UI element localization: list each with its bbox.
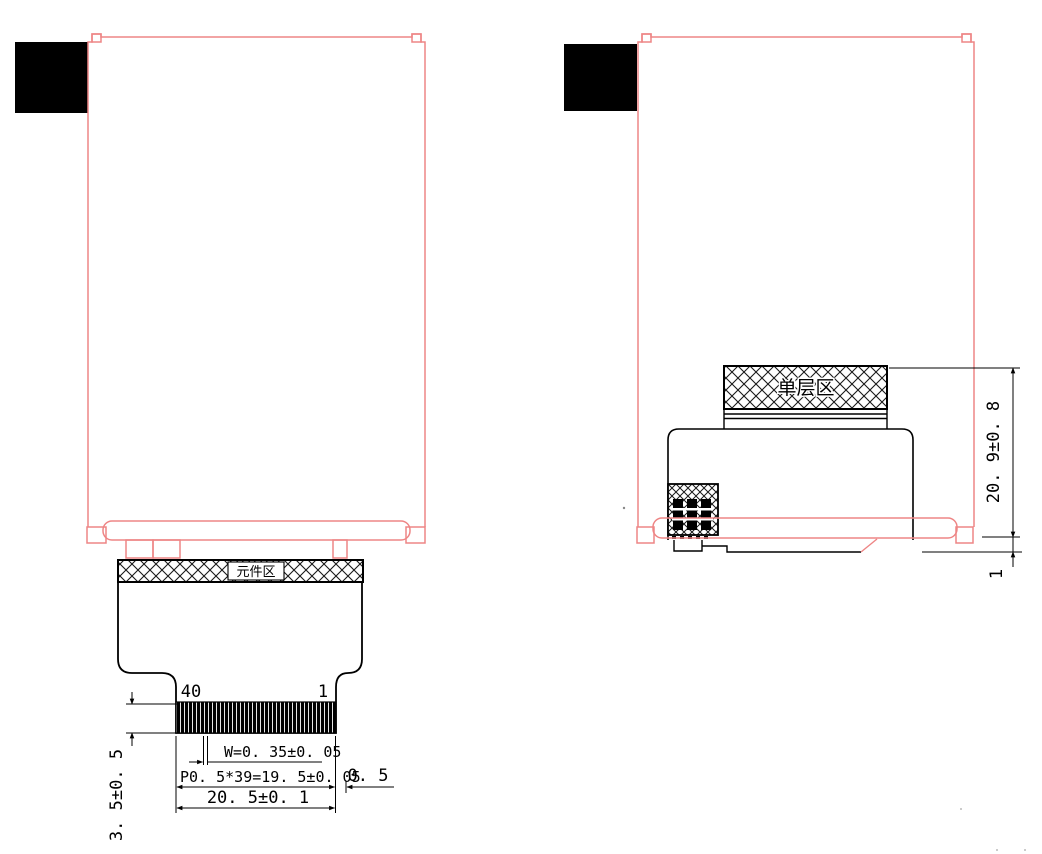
dim-total-width: 20. 5±0. 1 <box>207 788 309 808</box>
corner-mark-right <box>412 34 421 42</box>
fold-lines <box>674 540 861 552</box>
stray-point-marks <box>623 507 1042 851</box>
front-view: 元件区 40 1 3. 5±0. 5 <box>15 34 425 841</box>
dim-edge-margin: 0. 5 <box>348 766 389 786</box>
side-bottom-tab-left <box>637 527 654 543</box>
pin-40-label: 40 <box>181 682 201 702</box>
dim-total-height: 20. 9±0. 8 <box>984 401 1004 503</box>
front-panel-outline <box>87 34 425 558</box>
dim-tail-height: 3. 5±0. 5 <box>107 749 127 841</box>
side-bottom-tab-right <box>956 527 973 543</box>
technical-drawing: 元件区 40 1 3. 5±0. 5 <box>0 0 1042 854</box>
side-fpc-neck <box>724 409 887 429</box>
fpc-joint-tab-3 <box>333 540 347 558</box>
fpc-joint-tab-2 <box>153 540 180 558</box>
corner-mark-right <box>962 34 971 42</box>
fpc-joint-tab-1 <box>126 540 153 558</box>
corner-mark-left <box>92 34 101 42</box>
panel-outline-path <box>88 34 425 527</box>
fold-diagonal <box>861 539 877 552</box>
pin-1-label: 1 <box>318 682 328 702</box>
panel-bottom-bar <box>103 521 410 540</box>
side-view: 单层区 <box>564 34 1022 579</box>
dim-fold-offset: 1 <box>987 569 1007 579</box>
single-layer-label: 单层区 <box>777 377 834 399</box>
drawing-canvas: 元件区 40 1 3. 5±0. 5 <box>0 0 1042 854</box>
pin-contact-band <box>176 702 336 733</box>
dim-pin-width: W=0. 35±0. 05 <box>224 743 341 761</box>
side-black-tab <box>564 44 637 111</box>
dim-pitch-span: P0. 5*39=19. 5±0. 05 <box>180 768 361 786</box>
component-area-label: 元件区 <box>236 565 275 580</box>
front-black-tab <box>15 42 88 113</box>
corner-mark-left <box>642 34 651 42</box>
